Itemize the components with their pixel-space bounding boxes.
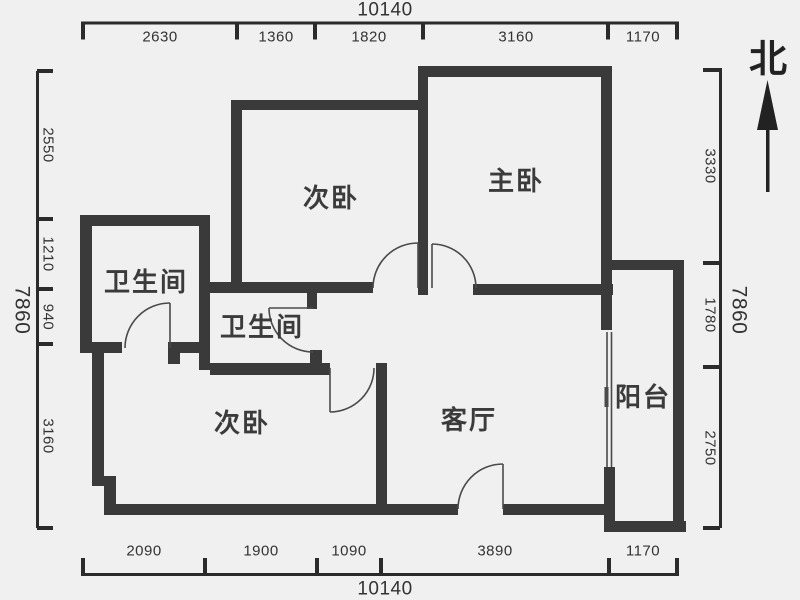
wall-bathroom2-south — [210, 363, 330, 375]
dimension-label: 1900 — [243, 543, 278, 560]
room-label-bathroom-middle: 卫生间 — [220, 312, 304, 342]
dimension-tick — [421, 22, 425, 40]
window-layer — [605, 332, 612, 467]
dimension-label: 1360 — [258, 29, 293, 46]
dimension-tick — [703, 365, 720, 369]
dimension-label: 3890 — [477, 543, 512, 560]
dimension-tick — [379, 558, 383, 576]
wall-bathroom1-top — [80, 215, 208, 226]
dimension-label: 3330 — [702, 148, 719, 183]
dimension-tick — [37, 526, 53, 530]
room-label-balcony: 阳台 — [615, 382, 671, 412]
wall-bedroom-top-left — [231, 100, 242, 293]
dimension-left: 2550 1210 940 3160 7860 — [11, 69, 57, 530]
dimension-tick — [203, 558, 207, 576]
dimension-bottom: 2090 1900 1090 3890 1170 10140 — [81, 543, 679, 600]
dimension-tick — [235, 22, 239, 40]
dimension-label: 1780 — [702, 297, 719, 332]
door-swing-arc-master — [432, 244, 476, 288]
wall-layer — [80, 66, 686, 532]
door-swing-arc-entrance — [458, 464, 503, 509]
wall-bathroom1-left — [80, 215, 92, 353]
window-panel-tick — [605, 387, 609, 407]
wall-bedroom-living-divider — [376, 363, 387, 515]
dimension-tick — [37, 287, 53, 291]
north-indicator: 北 — [749, 39, 787, 192]
floor-plan-page: 10140 2630 1360 1820 3160 1170 2090 1900… — [0, 0, 800, 600]
dimension-label: 1820 — [351, 29, 386, 46]
room-label-bedroom-top: 次卧 — [303, 183, 359, 213]
wall-bedroom-master-divider — [418, 66, 428, 295]
dimension-top: 10140 2630 1360 1820 3160 1170 — [81, 0, 679, 46]
dimension-tick — [703, 261, 720, 265]
wall-bedroom-top-top — [231, 100, 428, 110]
dimension-label: 1170 — [626, 29, 660, 46]
room-label-living-room: 客厅 — [441, 405, 497, 435]
dimension-tick — [675, 558, 679, 576]
dimension-label: 3160 — [40, 418, 57, 453]
dimension-total-right: 7860 — [728, 286, 751, 335]
dimension-label: 1170 — [626, 543, 660, 560]
dimension-tick — [37, 69, 53, 73]
wall-balcony-right — [673, 260, 684, 532]
dimension-tick — [37, 217, 53, 221]
room-label-layer: 次卧 主卧 卫生间 卫生间 次卧 客厅 阳台 — [104, 166, 671, 438]
dimension-tick — [37, 342, 53, 346]
dimension-total-bottom: 10140 — [357, 579, 412, 600]
dimension-tick — [315, 558, 319, 576]
dimension-label: 2750 — [702, 430, 719, 465]
dimension-tick — [313, 22, 317, 40]
dimension-tick — [81, 558, 85, 576]
room-label-bedroom-bottom: 次卧 — [214, 408, 270, 438]
wall-master-top — [418, 66, 612, 77]
dimension-total-left: 7860 — [11, 286, 34, 335]
dimension-tick — [703, 68, 720, 72]
dimension-tick — [675, 22, 679, 40]
wall-hallway-north — [202, 282, 373, 293]
dimension-label: 940 — [40, 304, 57, 331]
dimension-tick — [607, 558, 611, 576]
dimension-label: 1090 — [331, 543, 366, 560]
wall-balcony-bottom — [604, 521, 686, 532]
wall-window-stub-lower — [604, 467, 615, 532]
dimension-right: 3330 1780 2750 7860 — [702, 68, 751, 530]
floor-plan-canvas: 10140 2630 1360 1820 3160 1170 2090 1900… — [0, 0, 800, 600]
room-label-master-bedroom: 主卧 — [488, 166, 544, 196]
dimension-tick — [81, 22, 85, 40]
north-arrow-shaft — [766, 126, 770, 192]
wall-balcony-top — [611, 260, 683, 270]
room-label-bathroom-left: 卫生间 — [104, 267, 188, 297]
door-swing-arc-bedroom-top — [373, 243, 418, 288]
wall-bottom-right — [503, 504, 613, 515]
dimension-tick — [703, 526, 720, 530]
dimension-line — [36, 71, 39, 528]
dimension-label: 2090 — [126, 543, 161, 560]
dimension-tick — [606, 22, 610, 40]
wall-master-south — [473, 284, 613, 295]
dimension-label: 1210 — [40, 236, 57, 271]
door-swing-arc-bedroom-bottom — [330, 368, 374, 412]
north-label: 北 — [749, 39, 787, 81]
dimension-line — [83, 22, 677, 25]
dimension-label: 3160 — [498, 29, 533, 46]
dimension-label: 2550 — [40, 127, 57, 162]
dimension-label: 2630 — [142, 29, 177, 46]
north-arrow-head-icon — [757, 80, 778, 130]
wall-bedroom-bottom-left — [92, 342, 104, 483]
wall-bottom-main — [104, 504, 458, 515]
dimension-total-top: 10140 — [357, 0, 412, 21]
door-swing-arc-bathroom-left — [125, 303, 170, 348]
wall-bathroom2-north-stub — [307, 293, 317, 309]
